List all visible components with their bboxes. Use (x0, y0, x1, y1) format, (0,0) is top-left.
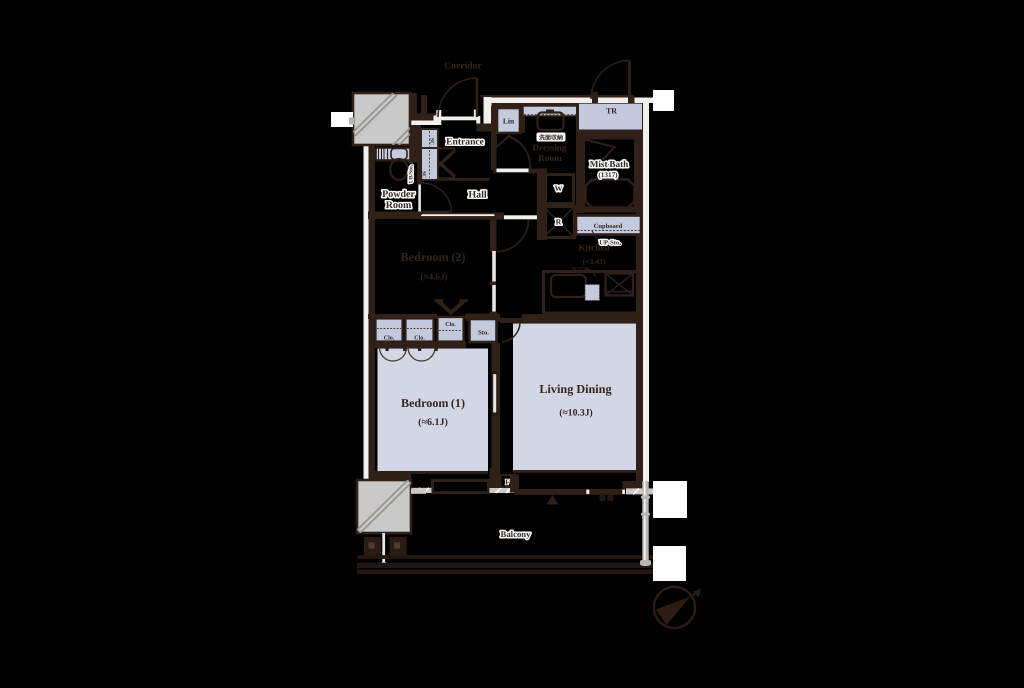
svg-text:(1317): (1317) (598, 171, 618, 179)
svg-text:F: F (505, 478, 510, 487)
svg-text:Clo.: Clo. (384, 335, 395, 342)
svg-text:(≈6.1J): (≈6.1J) (418, 417, 448, 428)
svg-text:(≈3.4J): (≈3.4J) (582, 257, 606, 266)
svg-text:Clo.: Clo. (445, 321, 456, 328)
svg-text:Living Dining: Living Dining (539, 382, 611, 396)
svg-text:Powder: Powder (382, 189, 415, 200)
svg-text:W: W (555, 184, 563, 193)
svg-text:(≈4.6J): (≈4.6J) (420, 272, 447, 282)
svg-text:Room: Room (386, 200, 412, 211)
svg-text:Entrance: Entrance (446, 137, 485, 148)
svg-text:Sto.: Sto. (478, 330, 489, 337)
svg-text:Room: Room (538, 153, 562, 163)
svg-text:Hall: Hall (468, 190, 487, 201)
svg-text:Cupboard: Cupboard (594, 223, 623, 230)
svg-text:TR: TR (606, 107, 617, 116)
svg-text:Balcony: Balcony (501, 529, 532, 539)
svg-text:Kitchen: Kitchen (578, 243, 609, 253)
svg-text:Mist Bath: Mist Bath (590, 159, 629, 169)
svg-text:SC: SC (421, 171, 427, 178)
svg-text:Lin: Lin (503, 117, 515, 126)
svg-text:Clo.: Clo. (414, 335, 425, 342)
svg-text:Corridor: Corridor (444, 61, 482, 72)
svg-text:R: R (556, 218, 562, 227)
svg-text:洗面収納: 洗面収納 (539, 134, 563, 142)
svg-text:(≈10.3J): (≈10.3J) (559, 408, 593, 419)
svg-text:Dressing: Dressing (532, 143, 566, 154)
svg-text:SC: SC (429, 138, 435, 145)
svg-text:Bedroom (1): Bedroom (1) (401, 396, 465, 410)
svg-text:UB/Sto.: UB/Sto. (409, 164, 415, 183)
svg-text:Bedroom (2): Bedroom (2) (400, 250, 465, 264)
